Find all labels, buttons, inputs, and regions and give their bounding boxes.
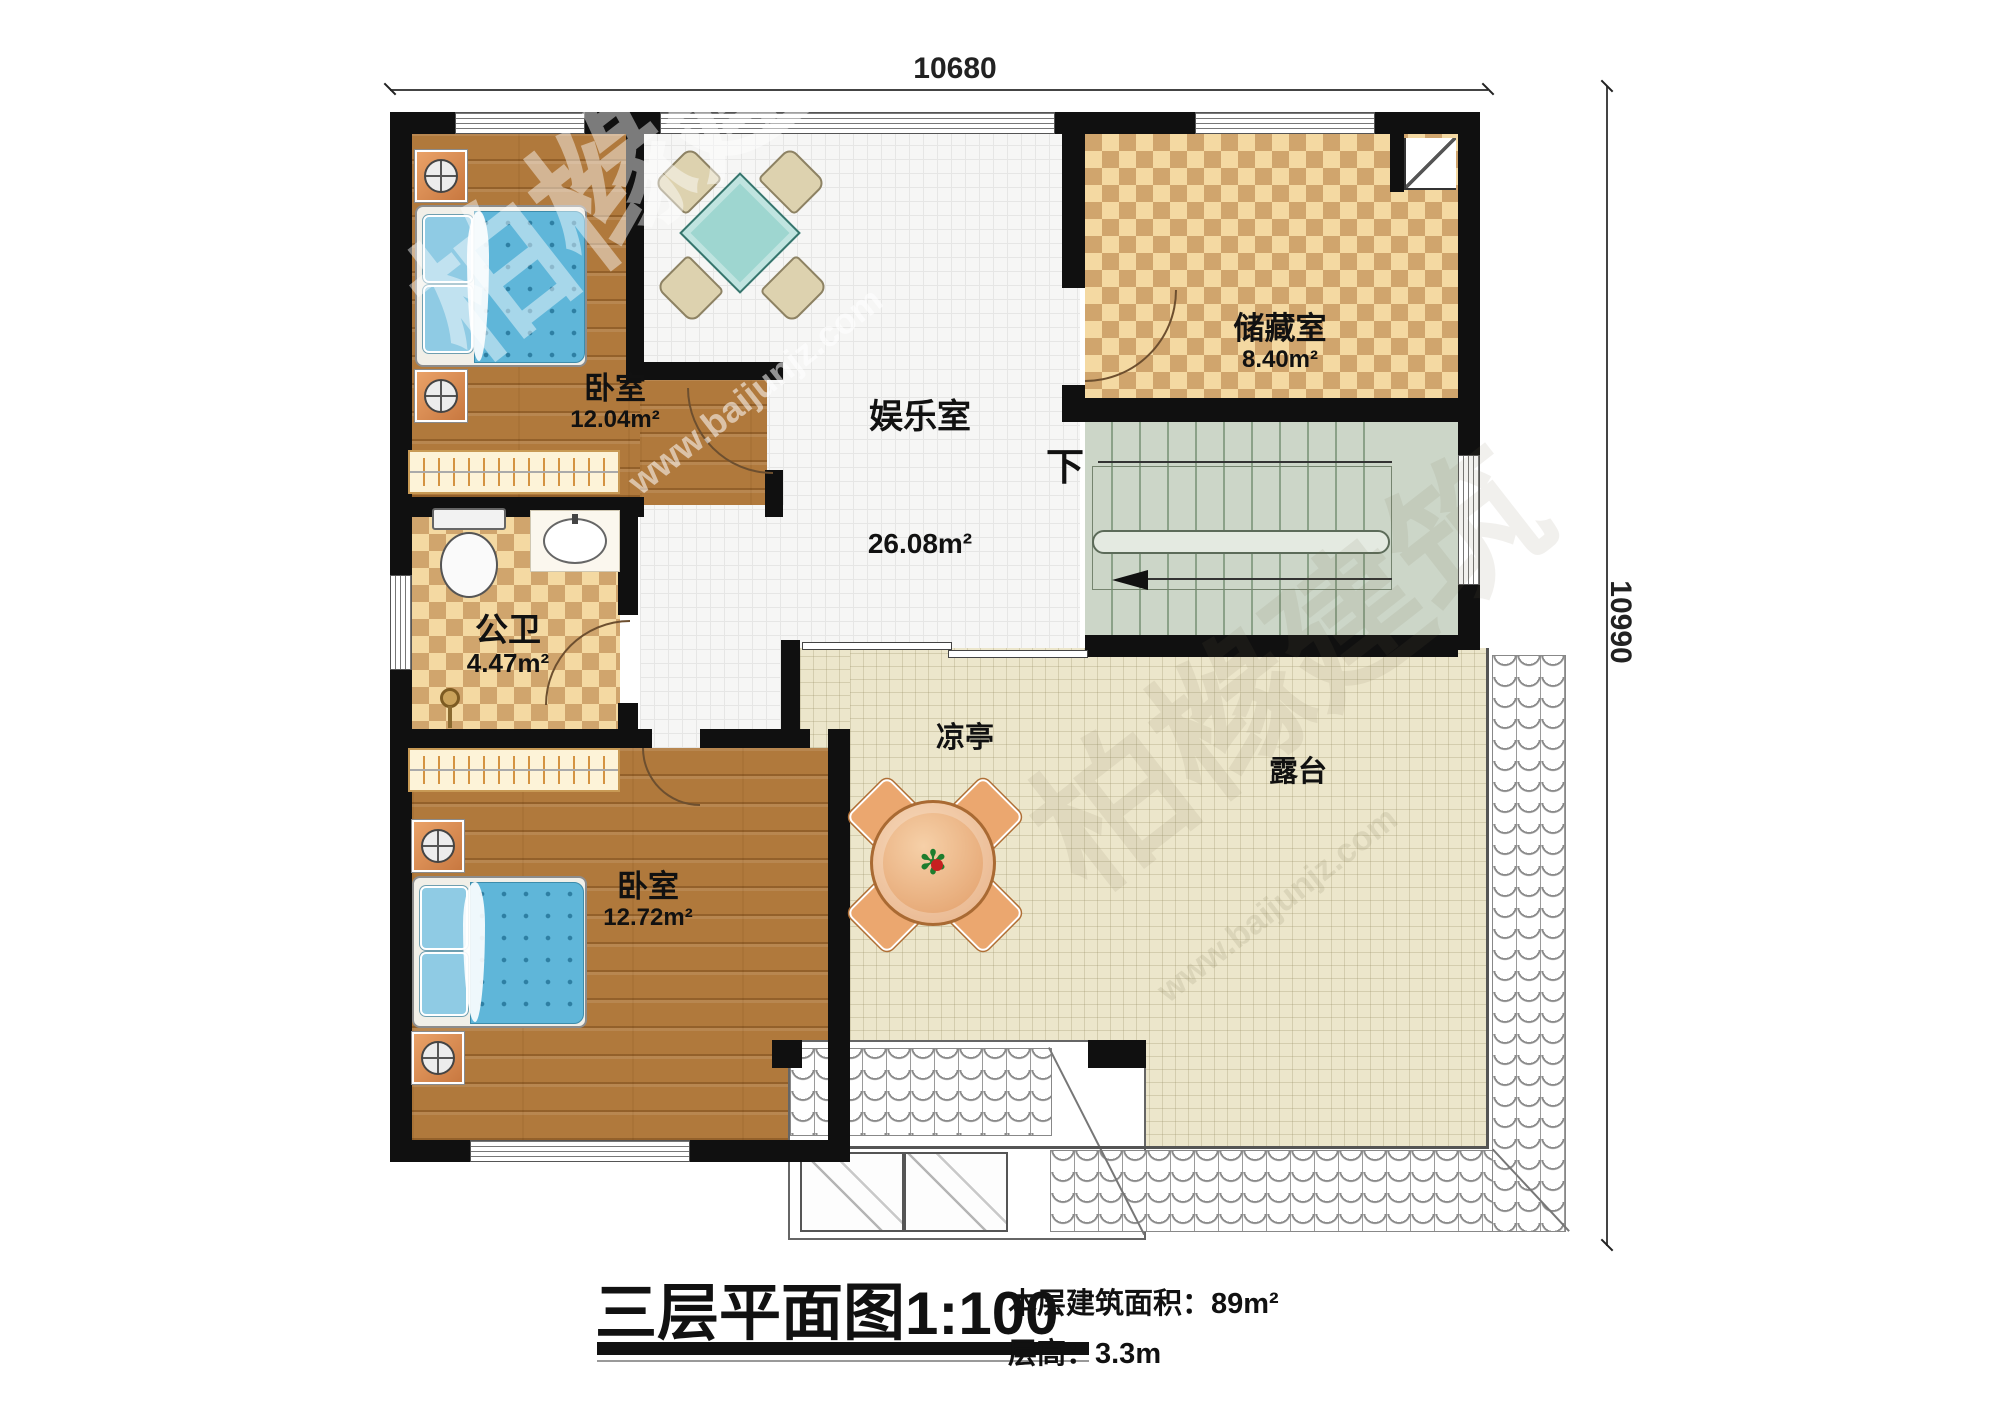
lamp-icon xyxy=(421,829,455,863)
wall-corridor-right xyxy=(781,640,800,748)
storage-label: 储藏室 8.40m² xyxy=(1185,312,1375,374)
floor-drain xyxy=(440,688,460,708)
pavilion-table: ✻ xyxy=(870,800,996,926)
room-area: 12.72m² xyxy=(558,905,738,932)
wall-bathroom-right-upper xyxy=(618,517,638,615)
window-stairwell-right xyxy=(1458,455,1480,585)
room-area: 8.40m² xyxy=(1185,347,1375,374)
window-bathroom-left xyxy=(390,575,412,670)
room-name: 凉亭 xyxy=(895,722,1035,754)
terrace-parapet-right xyxy=(1486,648,1489,1149)
wall-nook-right-stub xyxy=(765,470,783,517)
wall-bathroom-bottom xyxy=(390,729,652,748)
dimension-top-label: 10680 xyxy=(895,52,1015,86)
roof-tiles-right xyxy=(1492,655,1566,1232)
dormer-post-left xyxy=(772,1040,802,1068)
window-bedroom1-top xyxy=(455,112,585,134)
nightstand xyxy=(412,820,464,872)
entertainment-label: 娱乐室 xyxy=(835,398,1005,436)
dimension-right-label: 10990 xyxy=(1603,562,1637,682)
wall-stairwell-bottom xyxy=(1085,635,1458,657)
entertainment-area-label: 26.08m² xyxy=(825,528,1015,559)
floor-plan-canvas: 下 ✻ 卧室 xyxy=(0,0,2000,1413)
sink-faucet xyxy=(572,514,578,524)
flue-corner xyxy=(1404,138,1456,190)
room-name: 公卫 xyxy=(418,612,598,649)
room-name: 卧室 xyxy=(558,870,738,905)
plan-title-main: 三层平面图 xyxy=(595,1279,905,1348)
plan-title: 三层平面图1:100 xyxy=(595,1262,1058,1352)
room-area: 26.08m² xyxy=(825,528,1015,559)
dormer-window-right xyxy=(904,1152,1008,1232)
stair-down-label: 下 xyxy=(1046,436,1084,491)
sink-basin xyxy=(543,518,607,564)
toilet-bowl xyxy=(440,532,498,598)
window-bedroom2-bottom xyxy=(470,1140,690,1162)
flower-center-icon xyxy=(931,859,943,871)
bedroom1-label: 卧室 12.04m² xyxy=(535,372,695,434)
flue-post xyxy=(1390,134,1404,192)
wardrobe-bedroom1 xyxy=(408,450,620,494)
floor-drain-stem xyxy=(448,706,452,728)
stair-down-leader xyxy=(1098,461,1392,463)
stair-arrow-line xyxy=(1148,578,1392,580)
nightstand xyxy=(415,150,467,202)
lamp-icon xyxy=(424,379,458,413)
blanket xyxy=(474,211,585,363)
nightstand xyxy=(415,370,467,422)
terrace-parapet-bottom xyxy=(850,1146,1489,1149)
nightstand xyxy=(412,1032,464,1084)
room-name: 卧室 xyxy=(535,372,695,407)
corridor-floor xyxy=(640,505,790,748)
window-storage-top xyxy=(1195,112,1375,134)
lamp-icon xyxy=(421,1041,455,1075)
pillow xyxy=(420,952,468,1016)
wall-entertainment-storage-upper xyxy=(1062,112,1085,288)
lamp-icon xyxy=(424,159,458,193)
roof-tiles-bottom xyxy=(1050,1150,1566,1232)
toilet-tank xyxy=(432,508,506,530)
room-area: 4.47m² xyxy=(418,649,598,678)
window-entertainment-top xyxy=(660,112,1055,134)
wall-storage-bottom xyxy=(1062,398,1480,422)
sliding-door-panel-1 xyxy=(802,642,952,650)
terrace-label: 露台 xyxy=(1228,756,1368,788)
pillow xyxy=(420,886,468,950)
room-name: 储藏室 xyxy=(1185,312,1375,347)
bedroom2-label: 卧室 12.72m² xyxy=(558,870,738,932)
stair-direction-arrow xyxy=(1112,570,1148,590)
room-name: 露台 xyxy=(1228,756,1368,788)
dormer-window-left xyxy=(800,1152,904,1232)
wardrobe-bedroom2 xyxy=(408,748,620,792)
floor-area-text: 本层建筑面积：89m² xyxy=(1008,1280,1279,1322)
pillow xyxy=(423,215,473,283)
wall-bedroom2-right xyxy=(828,729,850,1162)
sliding-door-panel-2 xyxy=(948,650,1088,658)
pavilion-label: 凉亭 xyxy=(895,722,1035,754)
floor-height-text: 层高：3.3m xyxy=(1008,1330,1161,1372)
stair-handrail xyxy=(1092,530,1390,554)
wall-bathroom-right-stub xyxy=(618,703,638,729)
dimension-line-top xyxy=(390,89,1488,91)
bathroom-label: 公卫 4.47m² xyxy=(418,612,598,678)
bed-1 xyxy=(415,205,587,367)
room-area: 12.04m² xyxy=(535,407,695,434)
room-name: 娱乐室 xyxy=(835,398,1005,436)
wall-bedroom1-entertainment xyxy=(626,112,644,380)
dormer-post-right xyxy=(1088,1040,1146,1068)
pillow xyxy=(423,285,473,353)
